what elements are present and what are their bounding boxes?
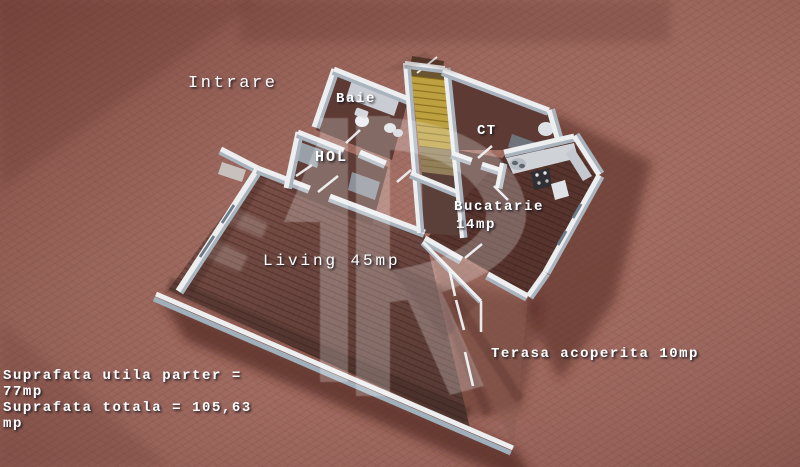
- svg-text:HOL: HOL: [315, 149, 348, 166]
- svg-text:77mp: 77mp: [3, 384, 43, 400]
- svg-text:Terasa acoperita 10mp: Terasa acoperita 10mp: [491, 346, 699, 362]
- svg-text:Living 45mp: Living 45mp: [263, 252, 401, 270]
- svg-text:Baie: Baie: [336, 91, 376, 107]
- svg-text:CT: CT: [477, 123, 497, 139]
- svg-text:Intrare: Intrare: [188, 74, 278, 93]
- svg-text:mp: mp: [3, 416, 23, 432]
- svg-text:Bucatarie: Bucatarie: [454, 199, 544, 215]
- svg-text:14mp: 14mp: [456, 217, 496, 233]
- svg-text:Suprafata utila parter =: Suprafata utila parter =: [3, 368, 242, 384]
- svg-text:Suprafata totala = 105,63: Suprafata totala = 105,63: [3, 400, 252, 416]
